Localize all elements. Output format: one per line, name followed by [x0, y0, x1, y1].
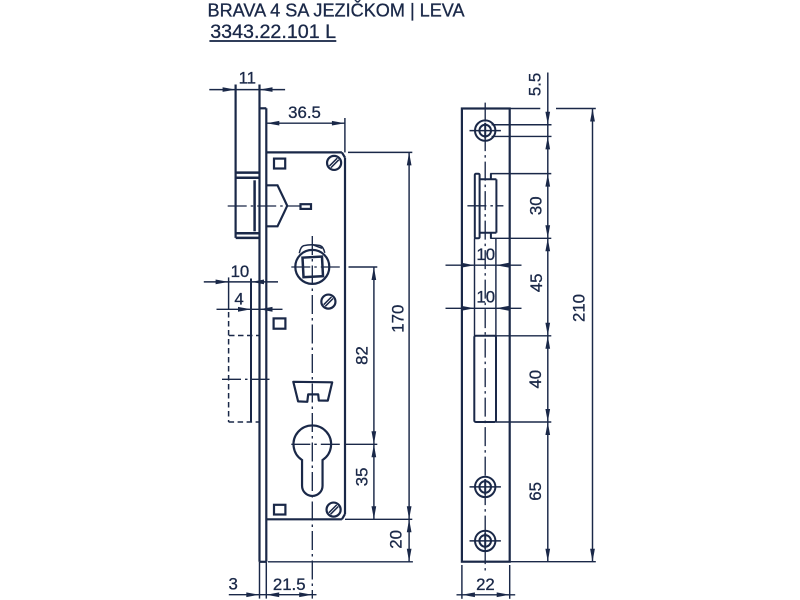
svg-text:21.5: 21.5: [273, 575, 306, 594]
svg-text:4: 4: [234, 289, 243, 308]
svg-text:210: 210: [570, 294, 589, 322]
svg-text:11: 11: [239, 69, 256, 88]
svg-text:10: 10: [476, 288, 495, 307]
svg-text:10: 10: [476, 245, 495, 264]
svg-text:20: 20: [387, 530, 406, 549]
svg-text:45: 45: [527, 274, 546, 293]
svg-text:35: 35: [353, 468, 372, 487]
svg-text:36.5: 36.5: [288, 103, 321, 122]
svg-text:3343.22.101 L: 3343.22.101 L: [210, 21, 336, 43]
svg-text:3: 3: [229, 574, 238, 593]
svg-text:5.5: 5.5: [526, 73, 545, 96]
svg-text:82: 82: [353, 346, 372, 365]
svg-text:40: 40: [526, 370, 545, 389]
svg-text:22: 22: [476, 575, 495, 594]
svg-text:65: 65: [526, 482, 545, 501]
svg-text:30: 30: [526, 196, 545, 215]
svg-text:170: 170: [389, 305, 408, 333]
svg-text:10: 10: [231, 262, 250, 281]
svg-text:BRAVA 4 SA JEZIČKOM | LEVA: BRAVA 4 SA JEZIČKOM | LEVA: [208, 0, 466, 20]
